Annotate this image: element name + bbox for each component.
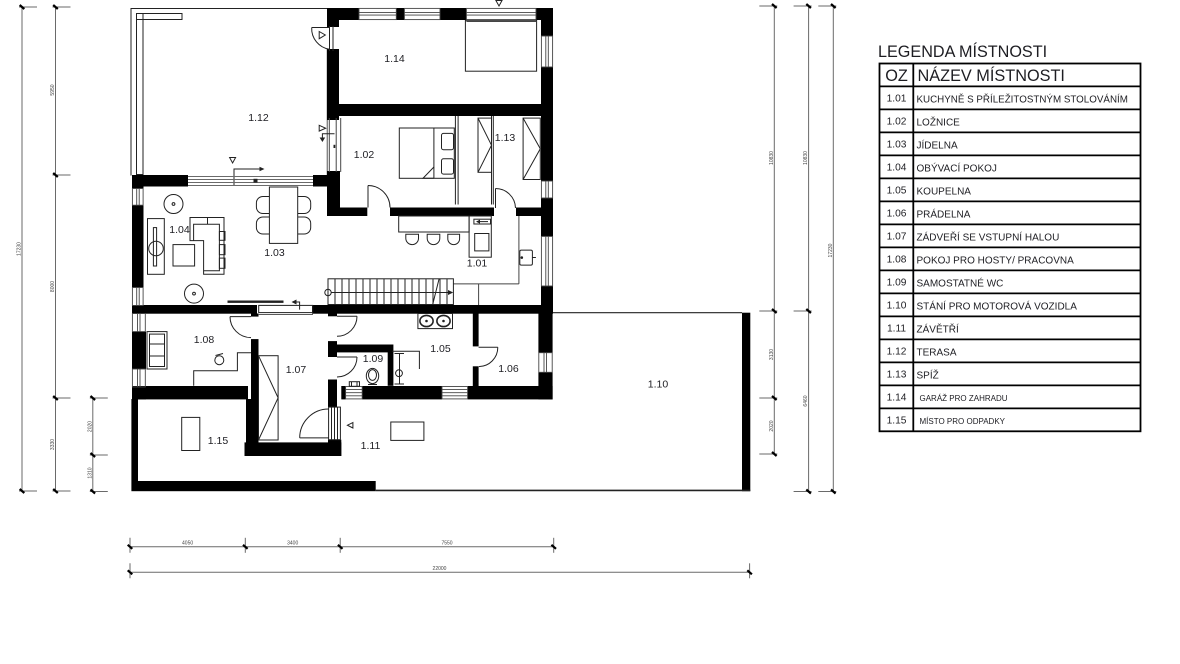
svg-text:1.02: 1.02 [354,149,375,161]
svg-text:POKOJ PRO HOSTY/ PRACOVNA: POKOJ PRO HOSTY/ PRACOVNA [917,255,1075,266]
svg-text:LEGENDA MÍSTNOSTI: LEGENDA MÍSTNOSTI [878,42,1047,61]
svg-text:1.08: 1.08 [887,254,907,265]
svg-text:1.13: 1.13 [887,369,907,380]
svg-text:1.01: 1.01 [467,258,488,270]
svg-text:5950: 5950 [50,84,56,95]
svg-text:17230: 17230 [17,242,23,256]
svg-text:1.15: 1.15 [208,435,229,447]
svg-text:1.11: 1.11 [361,440,381,452]
svg-text:1.11: 1.11 [887,323,906,334]
svg-text:7550: 7550 [441,540,452,546]
svg-text:1.12: 1.12 [248,112,269,124]
svg-text:10830: 10830 [769,151,775,165]
svg-text:NÁZEV MÍSTNOSTI: NÁZEV MÍSTNOSTI [918,66,1065,85]
svg-text:1.10: 1.10 [648,379,669,391]
svg-text:KUCHYNĚ S PŘÍLEŽITOSTNÝM STOLO: KUCHYNĚ S PŘÍLEŽITOSTNÝM STOLOVÁNÍM [917,94,1128,105]
svg-text:SAMOSTATNÉ WC: SAMOSTATNÉ WC [917,276,1004,289]
svg-text:STÁNÍ PRO MOTOROVÁ VOZIDLA: STÁNÍ PRO MOTOROVÁ VOZIDLA [917,299,1078,312]
svg-text:17230: 17230 [828,243,834,257]
svg-text:2020: 2020 [87,421,93,432]
svg-text:1.14: 1.14 [384,53,405,65]
svg-text:1.13: 1.13 [495,132,516,144]
svg-text:1.01: 1.01 [887,93,907,104]
svg-text:3400: 3400 [287,540,298,546]
svg-text:MÍSTO PRO ODPADKY: MÍSTO PRO ODPADKY [920,417,1006,426]
svg-text:SPÍŽ: SPÍŽ [917,368,939,381]
svg-text:1.04: 1.04 [887,162,907,173]
svg-text:1.02: 1.02 [887,116,907,127]
svg-text:1.10: 1.10 [887,300,907,311]
svg-text:1.08: 1.08 [194,334,215,346]
svg-text:1.03: 1.03 [887,139,907,150]
svg-text:3130: 3130 [769,349,775,360]
svg-text:10830: 10830 [803,151,809,165]
svg-text:2020: 2020 [769,420,775,431]
svg-text:1.15: 1.15 [887,415,907,426]
svg-text:GARÁŽ PRO ZAHRADU: GARÁŽ PRO ZAHRADU [920,394,1008,403]
svg-text:1.09: 1.09 [887,277,907,288]
svg-text:TERASA: TERASA [917,347,957,358]
svg-text:1.05: 1.05 [887,185,907,196]
svg-text:22000: 22000 [433,566,447,572]
svg-text:1.03: 1.03 [264,247,285,259]
svg-text:PRÁDELNA: PRÁDELNA [917,207,971,220]
svg-text:OBÝVACÍ POKOJ: OBÝVACÍ POKOJ [917,161,997,174]
svg-text:1.06: 1.06 [498,363,519,375]
svg-text:1.07: 1.07 [887,231,907,242]
svg-text:8000: 8000 [50,281,56,292]
svg-text:KOUPELNA: KOUPELNA [917,186,972,197]
svg-text:1.05: 1.05 [430,343,451,355]
svg-text:1.04: 1.04 [169,224,190,236]
svg-text:JÍDELNA: JÍDELNA [917,138,958,151]
svg-text:1.07: 1.07 [286,364,307,376]
svg-text:6460: 6460 [803,395,809,406]
svg-text:ZÁVĚTŘÍ: ZÁVĚTŘÍ [917,322,959,335]
svg-text:1310: 1310 [87,467,93,478]
svg-text:ZÁDVEŘÍ SE VSTUPNÍ HALOU: ZÁDVEŘÍ SE VSTUPNÍ HALOU [917,230,1060,243]
svg-text:3330: 3330 [50,439,56,450]
svg-text:OZ: OZ [885,67,908,85]
svg-text:4050: 4050 [182,540,193,546]
svg-text:1.12: 1.12 [887,346,907,357]
svg-text:1.14: 1.14 [887,392,907,403]
svg-text:1.06: 1.06 [887,208,907,219]
svg-text:1.09: 1.09 [363,353,384,365]
svg-text:LOŽNICE: LOŽNICE [917,115,961,128]
